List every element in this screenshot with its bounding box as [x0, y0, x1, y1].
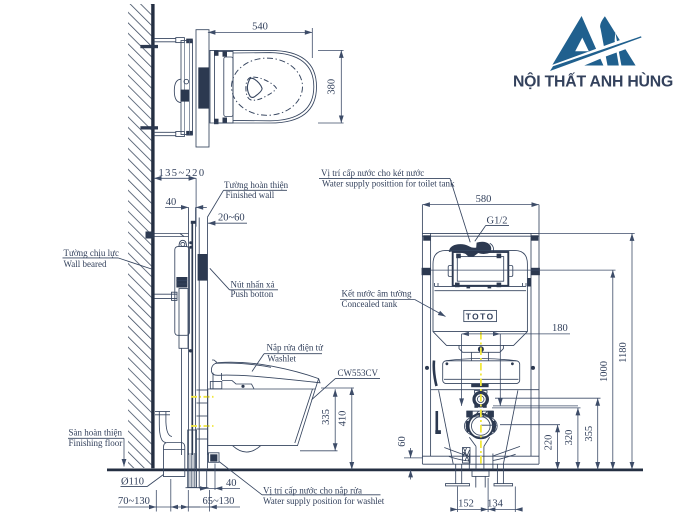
svg-text:134: 134 [487, 499, 504, 510]
svg-text:540: 540 [252, 22, 268, 33]
svg-text:G1/2: G1/2 [487, 215, 508, 226]
svg-text:40: 40 [226, 478, 237, 489]
svg-text:Ø110: Ø110 [121, 477, 144, 488]
svg-text:Nắp rửa điện tử: Nắp rửa điện tử [267, 343, 325, 353]
svg-text:70~130: 70~130 [118, 496, 150, 507]
svg-text:580: 580 [476, 194, 492, 205]
svg-text:20~60: 20~60 [218, 213, 245, 224]
svg-text:152: 152 [458, 499, 474, 510]
svg-text:TOTO: TOTO [466, 311, 495, 321]
svg-text:Vị trí cấp nước cho két nước: Vị trí cấp nước cho két nước [321, 168, 424, 178]
svg-text:60: 60 [397, 436, 408, 447]
svg-text:40: 40 [166, 197, 177, 208]
svg-text:NỘI THẤT ANH HÙNG: NỘI THẤT ANH HÙNG [513, 71, 673, 90]
svg-text:65~130: 65~130 [203, 496, 235, 507]
svg-text:Kết nước âm tường: Kết nước âm tường [342, 288, 413, 298]
svg-text:220: 220 [544, 435, 555, 451]
svg-text:135~220: 135~220 [159, 168, 206, 179]
svg-text:1180: 1180 [618, 342, 629, 363]
svg-text:335: 335 [321, 409, 332, 425]
svg-text:380: 380 [326, 79, 337, 95]
svg-text:320: 320 [564, 430, 575, 446]
svg-text:Water supply posittion for toi: Water supply posittion for toilet tank [322, 179, 455, 189]
svg-text:Vị trí cấp nước cho nắp rửa: Vị trí cấp nước cho nắp rửa [263, 485, 362, 495]
svg-text:Finishing floor: Finishing floor [69, 438, 123, 448]
svg-text:Washlet: Washlet [267, 354, 296, 364]
svg-text:Sàn hoàn thiện: Sàn hoàn thiện [69, 427, 123, 437]
svg-text:355: 355 [584, 426, 595, 442]
svg-text:Finished wall: Finished wall [226, 190, 275, 200]
svg-text:180: 180 [552, 323, 568, 334]
svg-text:CW553CV: CW553CV [338, 368, 379, 378]
svg-text:Nút nhấn xả: Nút nhấn xả [231, 280, 275, 290]
svg-text:Water supply position for wash: Water supply position for washlet [263, 496, 385, 506]
svg-text:Tường chịu lực: Tường chịu lực [64, 248, 120, 258]
svg-text:Push botton: Push botton [231, 289, 274, 299]
svg-text:1000: 1000 [599, 361, 610, 382]
svg-text:Wall beared: Wall beared [64, 259, 108, 269]
svg-text:Concealed tank: Concealed tank [342, 299, 398, 309]
svg-text:410: 410 [338, 411, 349, 427]
svg-text:Tường hoàn thiện: Tường hoàn thiện [224, 180, 289, 190]
